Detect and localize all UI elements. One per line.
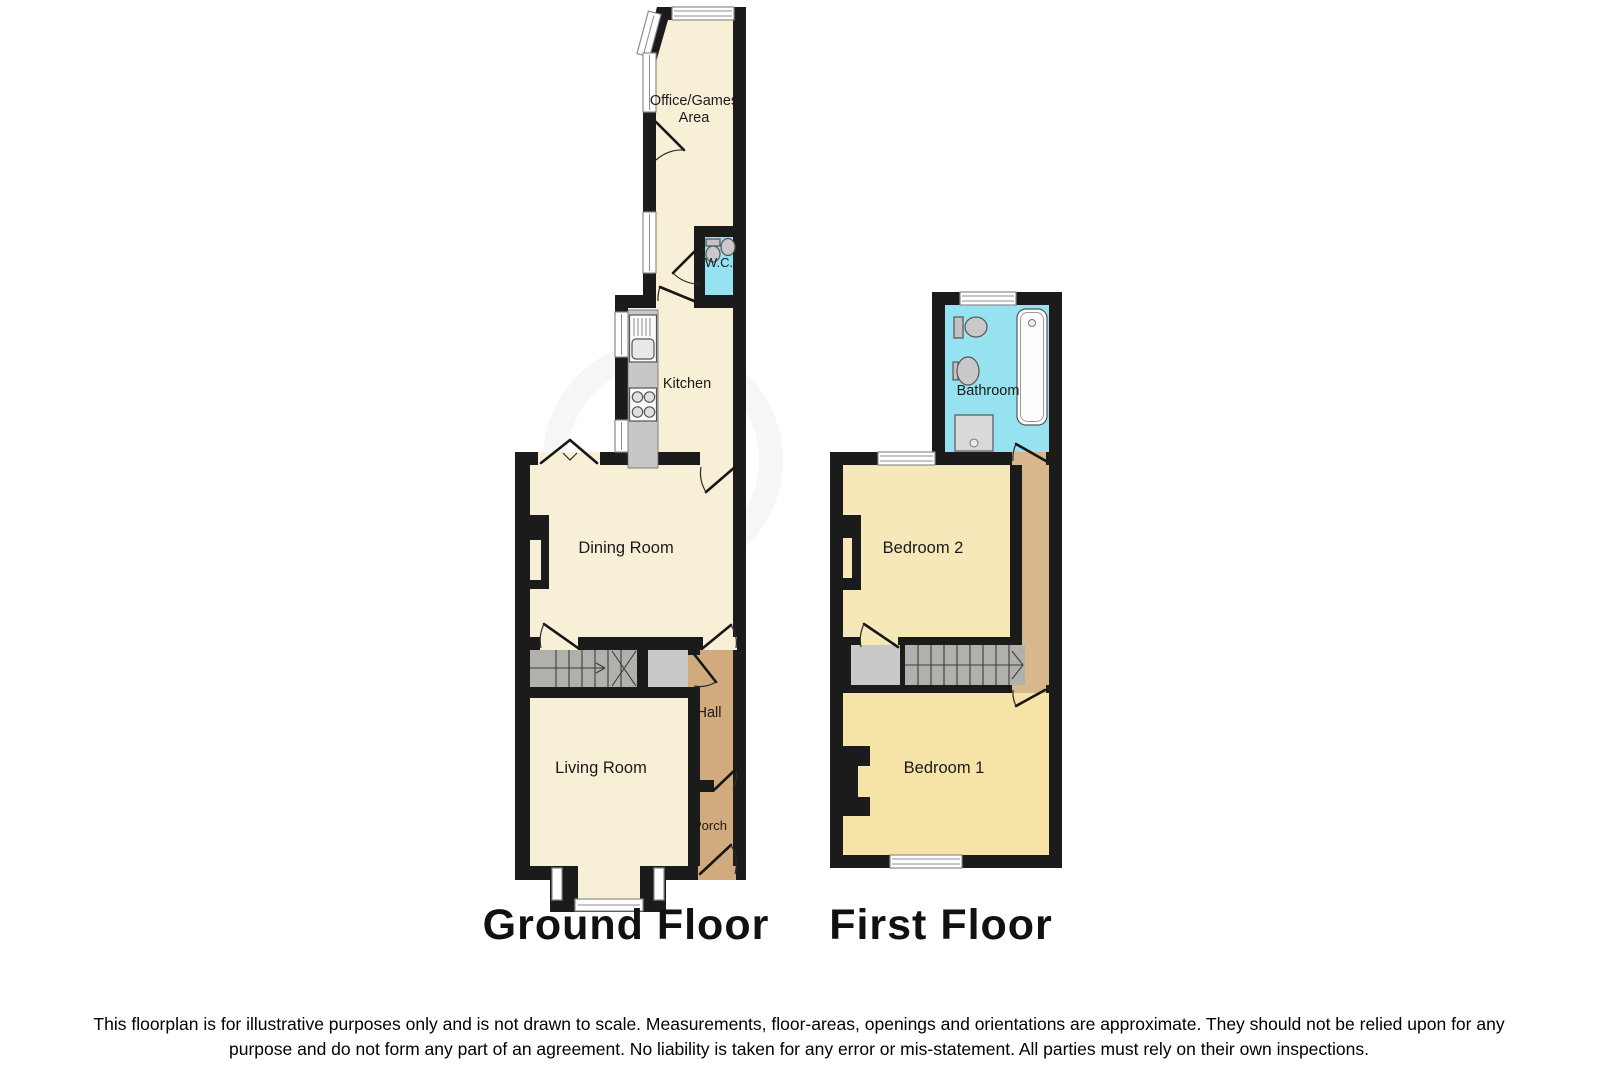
bathroom-toilet-fixture: [954, 317, 987, 338]
ground-floor-plan: Office/Games Area W.C. Kitchen Dining Ro…: [483, 7, 770, 949]
bathroom-label: Bathroom: [957, 383, 1020, 399]
bedroom2-label: Bedroom 2: [883, 539, 964, 557]
office-label-line2: Area: [679, 110, 711, 126]
floorplan-image: Office/Games Area W.C. Kitchen Dining Ro…: [0, 0, 1598, 1080]
living-room-label: Living Room: [555, 759, 647, 777]
hall-label: Hall: [697, 705, 722, 721]
landing-by-stairs: [1025, 645, 1049, 685]
shower-fixture: [955, 415, 993, 451]
wc-label: W.C.: [705, 255, 733, 270]
dining-room-label: Dining Room: [578, 539, 673, 557]
disclaimer-line2: purpose and do not form any part of an a…: [0, 1037, 1598, 1062]
opening-front-door: [698, 866, 736, 880]
kitchen-sink-fixture: [632, 339, 654, 359]
porch-label: Porch: [693, 818, 727, 833]
disclaimer-line1: This floorplan is for illustrative purpo…: [0, 1012, 1598, 1037]
bay-floor: [578, 866, 640, 900]
first-floor-stair-landing: [851, 645, 900, 685]
bathtub-fixture: [1017, 309, 1047, 425]
bedroom1-label: Bedroom 1: [904, 759, 985, 777]
disclaimer-text: This floorplan is for illustrative purpo…: [0, 1012, 1598, 1062]
opening-kitchen-dining: [700, 452, 733, 465]
kitchen-counter: [628, 310, 658, 468]
bedroom2-chimney-notch: [843, 538, 852, 578]
floorplan-canvas: Office/Games Area W.C. Kitchen Dining Ro…: [0, 0, 1598, 1080]
first-floor-title: First Floor: [829, 901, 1053, 949]
kitchen-label: Kitchen: [663, 376, 711, 392]
wc-basin-fixture: [721, 239, 735, 256]
room-living-floor: [530, 698, 688, 866]
understairs-cupboard: [648, 650, 688, 687]
bedroom1-chimney-notch: [858, 766, 870, 797]
office-label-line1: Office/Games: [650, 93, 738, 109]
ground-floor-title: Ground Floor: [483, 901, 770, 949]
dining-chimney-notch-fill: [530, 540, 541, 580]
first-floor-plan: Bathroom Bedroom 2 Bedroom 1 First Floor: [829, 292, 1062, 949]
